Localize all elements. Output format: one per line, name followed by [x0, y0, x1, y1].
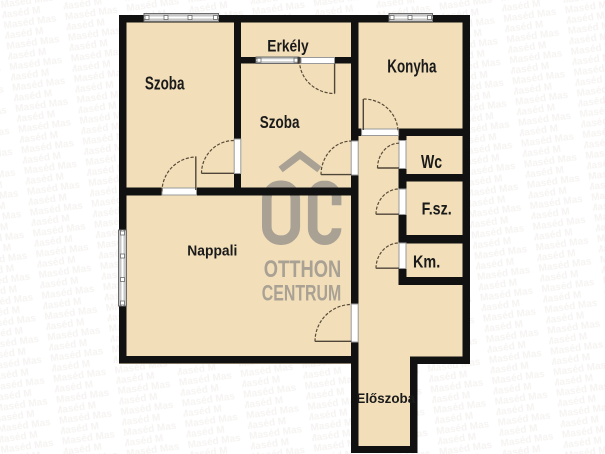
svg-text:Előszoba: Előszoba — [356, 391, 415, 406]
svg-text:Km.: Km. — [413, 251, 440, 271]
svg-text:Nappali: Nappali — [187, 243, 237, 260]
svg-text:Konyha: Konyha — [387, 55, 437, 76]
svg-text:Erkély: Erkély — [267, 36, 309, 55]
svg-text:CENTRUM: CENTRUM — [262, 281, 341, 306]
svg-text:OTTHON: OTTHON — [264, 256, 341, 283]
svg-text:Szoba: Szoba — [260, 112, 300, 132]
svg-text:Wc: Wc — [421, 151, 442, 172]
svg-text:Szoba: Szoba — [145, 72, 185, 93]
svg-text:F.sz.: F.sz. — [422, 198, 452, 218]
